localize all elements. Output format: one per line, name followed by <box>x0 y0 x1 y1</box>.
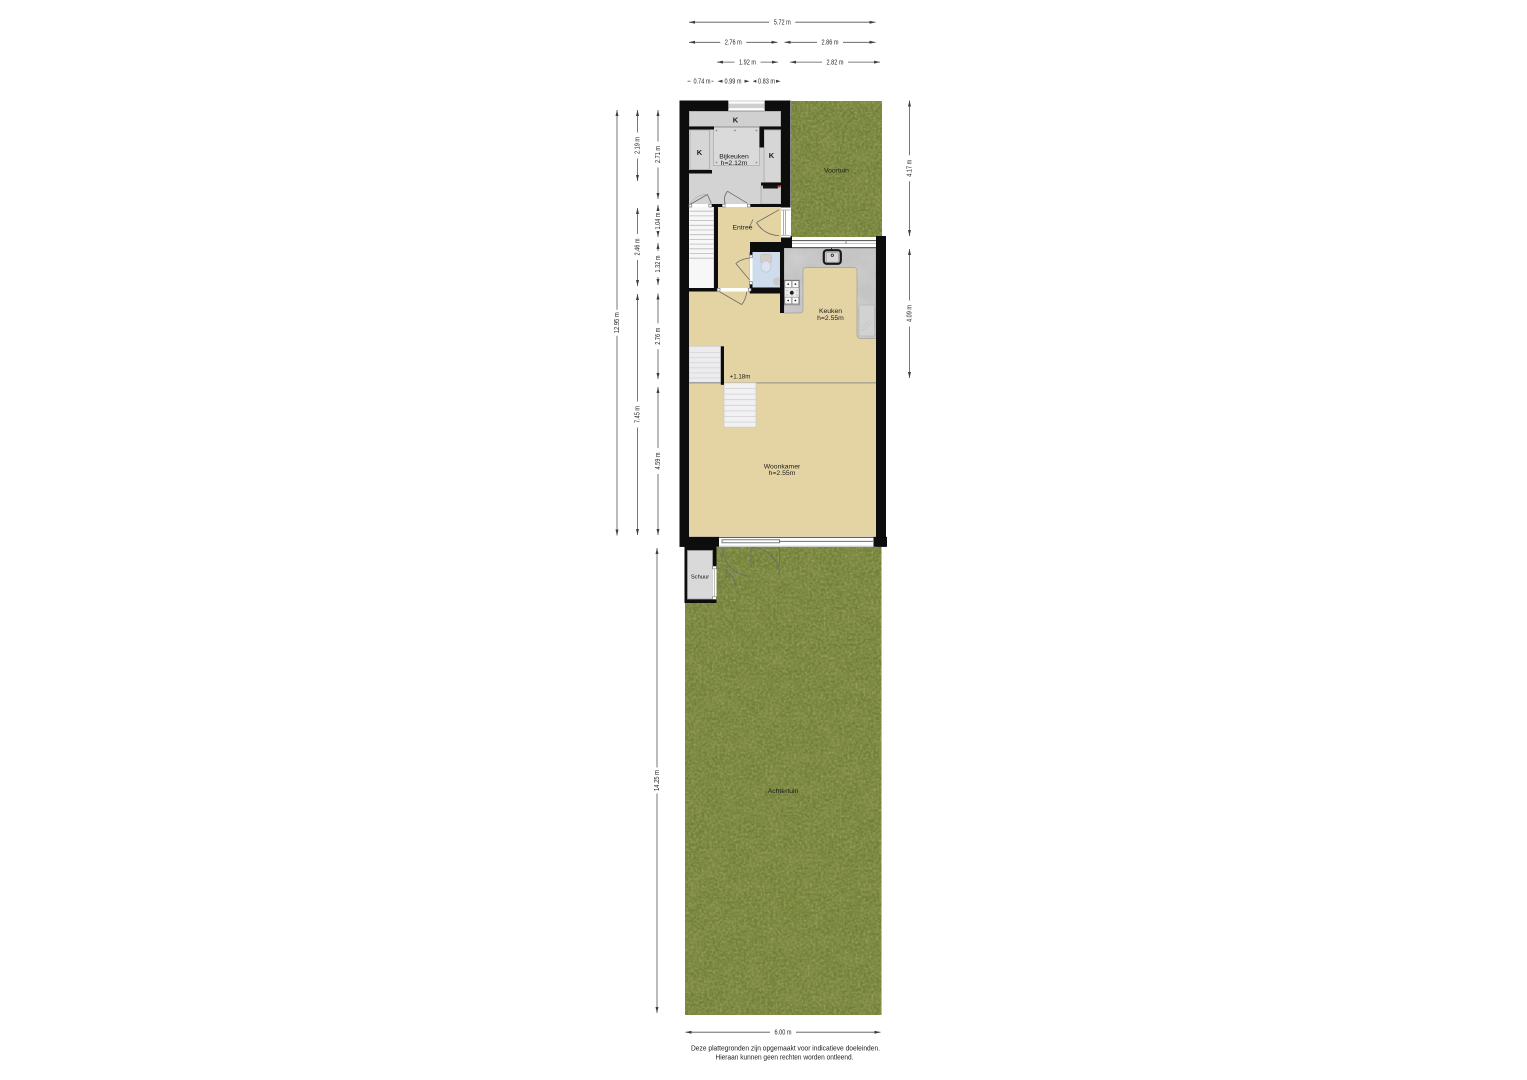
svg-text:2.19 m: 2.19 m <box>635 137 642 154</box>
svg-text:Voortuin: Voortuin <box>824 168 849 175</box>
svg-text:1.32 m: 1.32 m <box>655 255 662 272</box>
svg-text:6.00 m: 6.00 m <box>775 1030 792 1037</box>
svg-text:2.82 m: 2.82 m <box>827 60 844 67</box>
svg-text:12.95 m: 12.95 m <box>614 312 621 333</box>
svg-text:Entree: Entree <box>732 225 752 232</box>
svg-text:1.92 m: 1.92 m <box>739 60 756 67</box>
svg-text:2.76 m: 2.76 m <box>725 40 742 47</box>
svg-text:2.76 m: 2.76 m <box>655 328 662 345</box>
svg-text:h=2.12m: h=2.12m <box>721 160 748 167</box>
svg-text:Achtertuin: Achtertuin <box>768 788 799 795</box>
svg-text:+1.18m: +1.18m <box>730 374 751 381</box>
svg-text:1.04 m: 1.04 m <box>655 212 662 229</box>
svg-text:2.71 m: 2.71 m <box>655 146 662 163</box>
svg-text:0.83 m: 0.83 m <box>758 79 775 86</box>
svg-text:Deze plattegronden zijn opgema: Deze plattegronden zijn opgemaakt voor i… <box>691 1044 880 1053</box>
svg-text:2.46 m: 2.46 m <box>635 238 642 255</box>
svg-text:K: K <box>697 148 703 157</box>
svg-text:K: K <box>769 151 775 160</box>
svg-text:5.72 m: 5.72 m <box>774 20 791 27</box>
svg-text:7.45 m: 7.45 m <box>635 406 642 423</box>
svg-text:h=2.55m: h=2.55m <box>817 315 844 322</box>
svg-text:Hieraan kunnen geen rechten wo: Hieraan kunnen geen rechten worden ontle… <box>716 1052 854 1061</box>
svg-text:K: K <box>733 115 739 124</box>
svg-text:Schuur: Schuur <box>691 575 709 581</box>
svg-text:2.86 m: 2.86 m <box>822 40 839 47</box>
svg-text:4.17 m: 4.17 m <box>907 160 914 177</box>
svg-text:0.99 m: 0.99 m <box>725 79 742 86</box>
svg-text:4.59 m: 4.59 m <box>655 452 662 469</box>
svg-text:14.25 m: 14.25 m <box>654 770 661 791</box>
svg-text:0.74 m: 0.74 m <box>694 79 711 86</box>
svg-text:h=2.55m: h=2.55m <box>769 470 796 477</box>
svg-text:4.09 m: 4.09 m <box>907 305 914 322</box>
